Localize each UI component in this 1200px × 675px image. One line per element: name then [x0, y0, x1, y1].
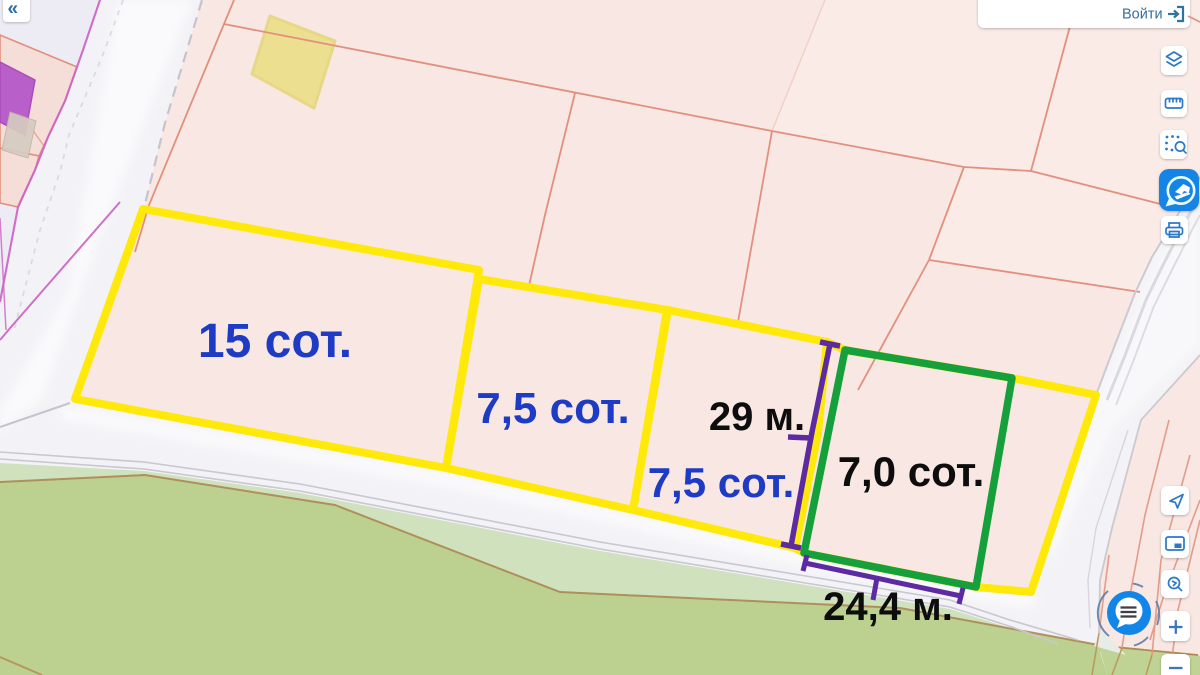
svg-text:«: « — [8, 0, 19, 20]
svg-text:7,5 сот.: 7,5 сот. — [476, 384, 630, 433]
svg-text:7,5 сот.: 7,5 сот. — [648, 459, 795, 506]
svg-text:29 м.: 29 м. — [709, 395, 805, 439]
svg-text:15 сот.: 15 сот. — [198, 315, 352, 368]
svg-text:7,0 сот.: 7,0 сот. — [838, 448, 985, 495]
svg-text:24,4 м.: 24,4 м. — [823, 585, 953, 629]
svg-text:Войти: Войти — [1122, 7, 1163, 23]
